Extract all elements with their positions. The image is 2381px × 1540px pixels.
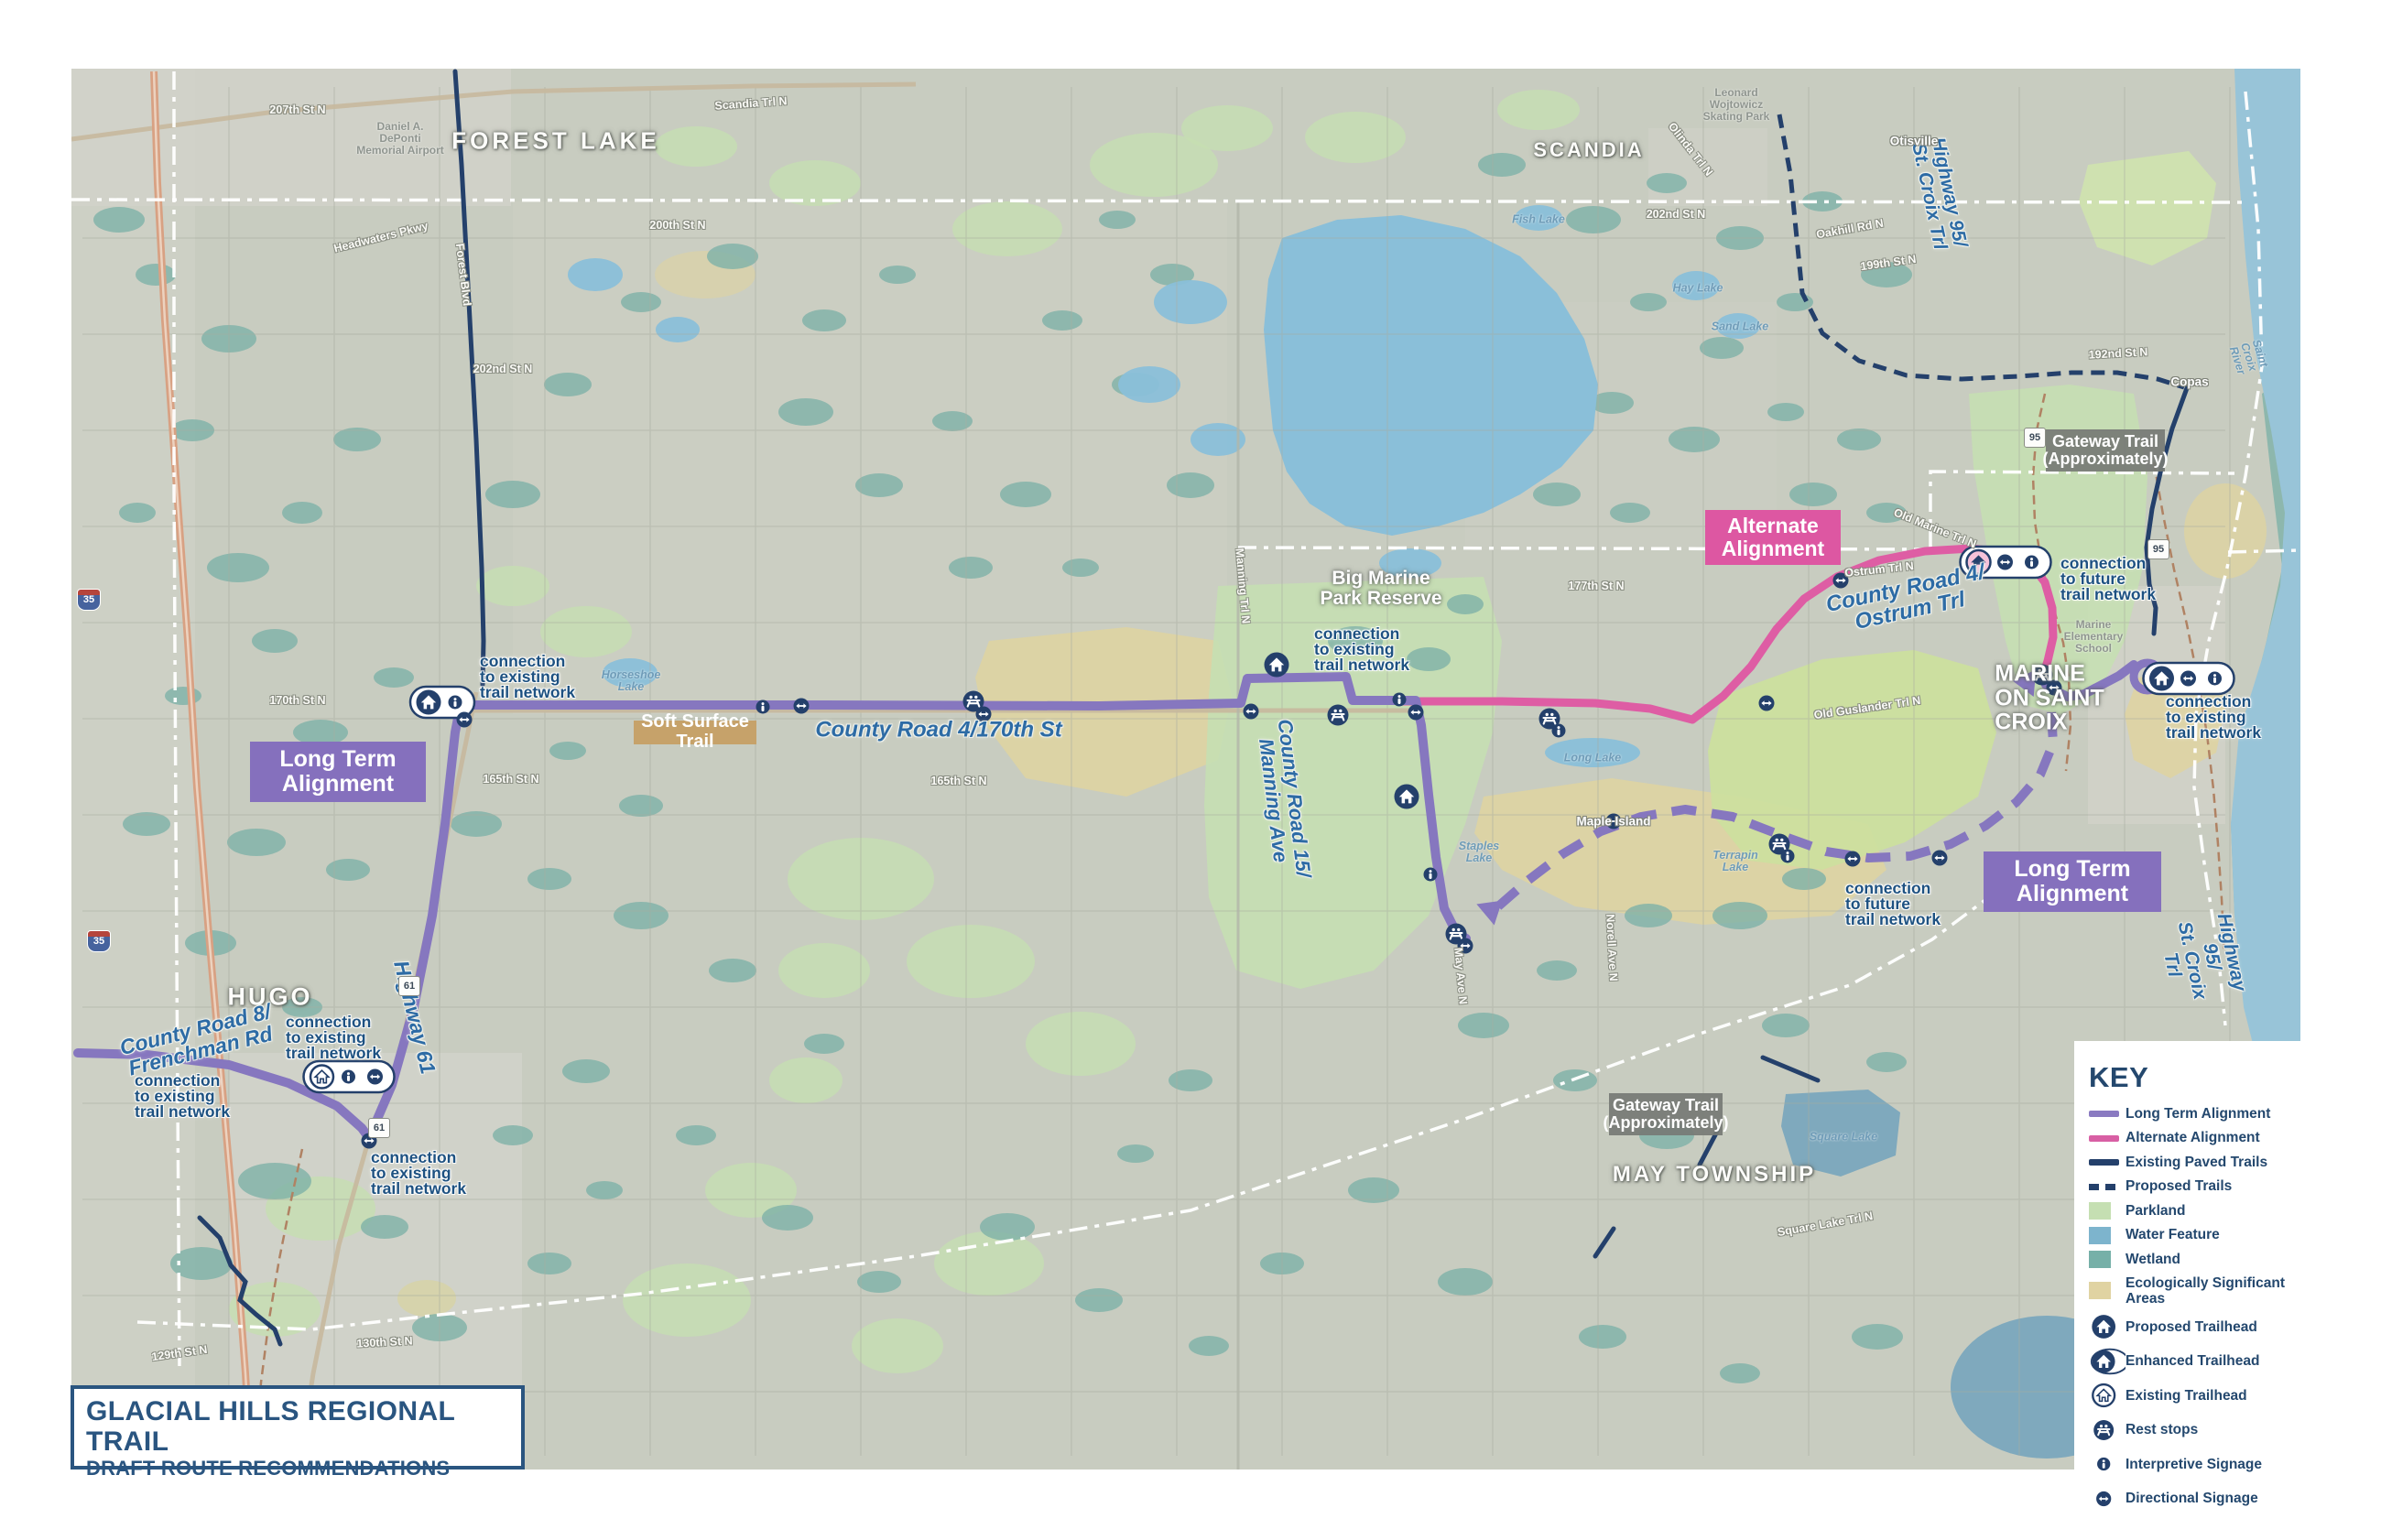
- interpretive-signage-icon: [2089, 1450, 2126, 1478]
- interpretive-signage-icon: [2025, 556, 2039, 569]
- key-swatch: [2089, 1227, 2126, 1244]
- proposed-trailhead-icon: [2089, 1313, 2126, 1340]
- key-swatch: [2089, 1111, 2126, 1117]
- key-item-label: Interpretive Signage: [2126, 1457, 2262, 1472]
- map-title-box: GLACIAL HILLS REGIONAL TRAIL DRAFT ROUTE…: [71, 1385, 525, 1470]
- interpretive-signage-icon: [1781, 850, 1795, 863]
- directional-signage-icon: [794, 699, 810, 714]
- rest-stop-swatch: [2089, 1416, 2126, 1444]
- existing-trailhead-icon: [2089, 1382, 2126, 1409]
- key-item-label: Proposed Trails: [2126, 1178, 2232, 1194]
- directional-signage-icon: [976, 707, 992, 722]
- proposed-trailhead-icon: [417, 690, 441, 715]
- key-item-existing-trailhead: Existing Trailhead: [2089, 1382, 2332, 1409]
- key-item-label: Existing Paved Trails: [2126, 1155, 2267, 1170]
- key-swatch: [2089, 1282, 2126, 1299]
- existing-trailhead-icon: [2093, 1384, 2115, 1406]
- interpretive-signage-icon: [342, 1070, 355, 1084]
- key-title: KEY: [2089, 1061, 2332, 1094]
- key-item-wetland: Wetland: [2089, 1251, 2332, 1268]
- key-item-alternate-alignment: Alternate Alignment: [2089, 1130, 2332, 1147]
- key-item-long-term-alignment: Long Term Alignment: [2089, 1105, 2332, 1122]
- rest-stop-icon: [1328, 705, 1349, 726]
- proposed-trailhead-icon: [2149, 667, 2174, 691]
- pill-ostrum: [1961, 547, 2051, 578]
- directional-signage-icon: [1833, 573, 1849, 589]
- directional-signage-icon: [1932, 851, 1948, 866]
- map-base-art: [71, 69, 2300, 1470]
- enhanced-trailhead-swatch: [2089, 1348, 2126, 1375]
- key-swatch: [2089, 1202, 2126, 1220]
- directional-signage-icon: [362, 1133, 377, 1149]
- map-subtitle: DRAFT ROUTE RECOMMENDATIONS: [86, 1457, 521, 1480]
- key-item-directional-signage: Directional Signage: [2089, 1485, 2332, 1513]
- proposed-trailhead-icon: [1395, 785, 1419, 809]
- proposed-trailhead-icon: [1265, 653, 1289, 678]
- directional-signage-icon: [1845, 851, 1861, 867]
- key-item-enhanced-trailhead: Enhanced Trailhead: [2089, 1348, 2332, 1375]
- directional-signage-swatch: [2089, 1485, 2126, 1513]
- key-swatch: [2089, 1251, 2126, 1268]
- interpretive-signage-icon: [1424, 868, 1438, 882]
- directional-signage-icon: [457, 712, 473, 728]
- key-swatch: [2089, 1135, 2126, 1142]
- key-item-label: Existing Trailhead: [2126, 1388, 2247, 1404]
- interpretive-signage-icon: [2097, 1458, 2110, 1470]
- directional-signage-icon: [367, 1069, 383, 1085]
- key-item-rest-stops: Rest stops: [2089, 1416, 2332, 1444]
- key-swatch: [2089, 1159, 2126, 1166]
- trail-map-page: FOREST LAKESCANDIAHUGOMAY TOWNSHIPBig Ma…: [0, 0, 2381, 1540]
- directional-signage-icon: [2089, 1485, 2126, 1513]
- pill-hugo: [304, 1061, 395, 1092]
- interpretive-signage-icon: [2208, 672, 2222, 686]
- directional-signage-icon: [1244, 704, 1259, 720]
- key-item-label: Rest stops: [2126, 1422, 2198, 1437]
- directional-signage-icon: [2047, 680, 2062, 696]
- key-item-existing-paved-trails: Existing Paved Trails: [2089, 1154, 2332, 1171]
- key-item-label: Proposed Trailhead: [2126, 1319, 2257, 1335]
- key-item-interpretive-signage: Interpretive Signage: [2089, 1450, 2332, 1478]
- interpretive-signage-icon: [756, 700, 770, 714]
- key-item-label: Parkland: [2126, 1203, 2185, 1219]
- key-item-label: Long Term Alignment: [2126, 1106, 2270, 1122]
- key-item-water-feature: Water Feature: [2089, 1227, 2332, 1244]
- existing-trailhead-swatch: [2089, 1382, 2126, 1409]
- interpretive-signage-icon: [1552, 724, 1566, 738]
- key-swatch: [2089, 1184, 2126, 1190]
- map-key-panel: KEY Long Term AlignmentAlternate Alignme…: [2074, 1041, 2341, 1494]
- key-item-label: Enhanced Trailhead: [2126, 1353, 2259, 1369]
- directional-signage-icon: [2180, 671, 2196, 687]
- key-items: Long Term AlignmentAlternate AlignmentEx…: [2089, 1105, 2332, 1513]
- key-item-parkland: Parkland: [2089, 1202, 2332, 1220]
- key-item-label: Ecologically Significant Areas: [2126, 1275, 2295, 1307]
- directional-signage-icon: [1408, 705, 1424, 721]
- directional-signage-icon: [1997, 555, 2013, 570]
- rest-stop-icon: [2089, 1416, 2126, 1444]
- interpretive-signage-icon: [1393, 693, 1407, 707]
- map-canvas: FOREST LAKESCANDIAHUGOMAY TOWNSHIPBig Ma…: [71, 69, 2300, 1470]
- directional-signage-icon: [1458, 938, 1473, 954]
- enhanced-trailhead-icon: [2092, 1349, 2126, 1373]
- key-item-label: Alternate Alignment: [2126, 1130, 2260, 1145]
- enhanced-trailhead-icon: [1967, 550, 1991, 574]
- key-item-label: Wetland: [2126, 1252, 2180, 1267]
- proposed-trailhead-swatch: [2089, 1313, 2126, 1340]
- key-item-label: Water Feature: [2126, 1227, 2220, 1242]
- enhanced-trailhead-icon: [2089, 1348, 2126, 1375]
- map-title: GLACIAL HILLS REGIONAL TRAIL: [86, 1396, 521, 1457]
- existing-trailhead-icon: [310, 1066, 333, 1089]
- proposed-trailhead-icon: [2092, 1315, 2115, 1339]
- key-item-proposed-trailhead: Proposed Trailhead: [2089, 1313, 2332, 1340]
- directional-signage-icon: [2096, 1491, 2111, 1505]
- interpretive-signage-swatch: [2089, 1450, 2126, 1478]
- pill-marine: [2144, 663, 2234, 694]
- key-item-label: Directional Signage: [2126, 1491, 2258, 1506]
- key-item-proposed-trails: Proposed Trails: [2089, 1178, 2332, 1196]
- key-item-ecologically-significant-areas: Ecologically Significant Areas: [2089, 1275, 2332, 1307]
- rest-stop-icon: [2093, 1420, 2114, 1440]
- directional-signage-icon: [1759, 696, 1775, 711]
- interpretive-signage-icon: [449, 696, 462, 710]
- directional-signage-icon: [1606, 814, 1622, 830]
